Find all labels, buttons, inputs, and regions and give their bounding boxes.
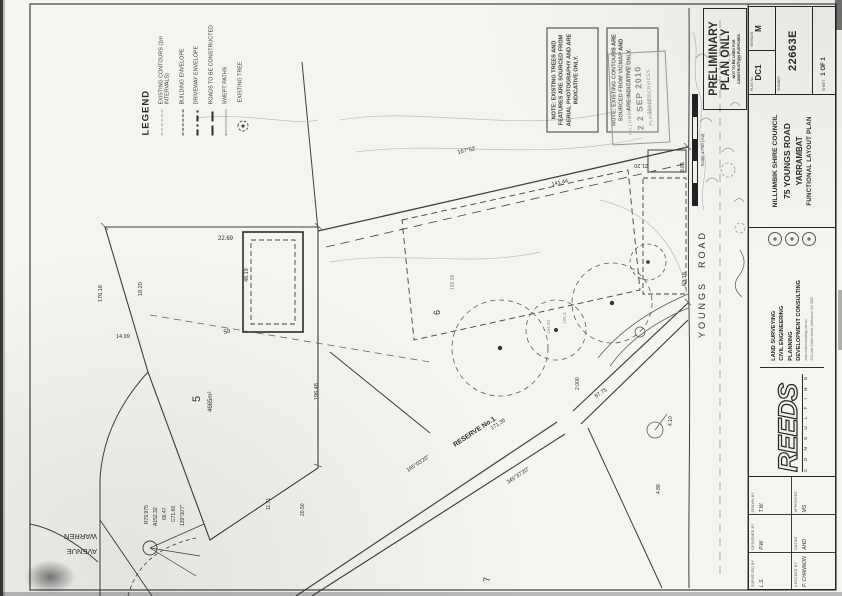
dimension-label: 9.85 <box>680 162 686 172</box>
lot-area-label: 4665m² <box>208 392 214 412</box>
field-value: AHD <box>802 517 808 549</box>
client-name: NILLUMBIK SHIRE COUNCIL <box>772 115 779 208</box>
certification-logos <box>768 232 816 246</box>
legend-item: EXISTING TREE <box>237 7 248 136</box>
lot7-east-boundary <box>588 428 662 588</box>
corner-splay-line <box>100 520 152 596</box>
reeds-logo-text: REEDS <box>776 374 800 472</box>
firm-service: PLANNING <box>787 251 795 361</box>
title-block: SURVEYED BY L.S. DESIGNED BY P.W. DRAWN … <box>748 6 836 590</box>
field-value: L.S. <box>759 555 765 587</box>
project-title-block: NILLUMBIK SHIRE COUNCIL 75 YOUNGS ROAD Y… <box>749 94 835 227</box>
version-value: M <box>754 10 763 47</box>
lot-number-label: 5 <box>191 396 203 402</box>
legend-item: DRIVEWAY ENVELOPE <box>194 7 200 136</box>
dimension-label: 2.000 <box>575 377 581 390</box>
survey-arc-label: A152.32 <box>153 507 159 526</box>
legend-item: ROADS TO BE CONSTRUCTED <box>208 7 214 136</box>
firm-services: LAND SURVEYING CIVIL ENGINEERING PLANNIN… <box>770 251 813 361</box>
legend-item-label: ROADS TO BE CONSTRUCTED <box>208 25 214 104</box>
legend-item-label: DRIVEWAY ENVELOPE <box>194 46 200 105</box>
field-label: DRAWN BY <box>751 479 755 512</box>
bearing-label: 139°30'7" <box>180 504 186 526</box>
dimension-label: 63.18 <box>682 272 688 286</box>
youngs-road-west-edge <box>688 8 689 588</box>
preliminary-stamp-line2: PLAN ONLY <box>721 28 733 90</box>
sheet-label: SHEET <box>822 80 826 91</box>
legend-item-label: BUILDING ENVELOPE <box>179 48 185 104</box>
radial-survey-lines <box>150 524 204 576</box>
legend-item: BUILDING ENVELOPE <box>179 7 185 136</box>
legend-tree-symbol-icon <box>237 121 248 132</box>
field-label: DESIGNED BY <box>751 517 755 549</box>
field-label: SURVEYED BY <box>751 555 755 587</box>
legend-item-label: SWEPT PATHS <box>223 67 229 105</box>
tree-trunk-dots <box>498 260 650 350</box>
dimension-label: 196.48 <box>314 383 320 400</box>
survey-arc-label: R79.975 <box>144 505 150 524</box>
plan-title: FUNCTIONAL LAYOUT PLAN <box>807 116 813 205</box>
plan-version-row: PLAN No. DC1 VERSION M <box>749 7 776 94</box>
project-address-line2: YARRAMBAT <box>795 137 804 186</box>
road-name-label: YOUNGS <box>697 281 707 338</box>
road-name-label: ROAD <box>697 230 707 268</box>
sheet-value: 1 OF 1 <box>821 57 827 75</box>
legend-line-roads <box>211 110 213 136</box>
number-cell: NUMBER 22663E <box>776 7 813 94</box>
reeds-tagline: C O N S U L T I N G <box>802 374 808 472</box>
received-stamp: NILLUMBIK SHIRE COUNCIL 2 2 SEP 2010 PLA… <box>608 51 671 146</box>
drawing-number-value: 22663E <box>787 10 799 91</box>
dimension-label: 22.69 <box>218 236 234 242</box>
contour-label: 198.98 <box>450 274 456 290</box>
firm-service: LAND SURVEYING <box>770 251 778 361</box>
scanned-plan-sheet: YOUNGS ROAD WARREN AVENUE RESERVE No.1 1… <box>0 0 842 596</box>
lot5-boundary <box>105 227 318 540</box>
firm-website: www.reedsconsulting.com.au <box>804 251 808 361</box>
received-stamp-dept: PLANNING SERVICES <box>646 69 654 126</box>
cul-de-sac-arc <box>128 538 196 596</box>
firm-service: DEVELOPMENT CONSULTING <box>795 251 803 361</box>
legend-line-contour <box>162 110 163 136</box>
number-label: NUMBER <box>777 10 781 91</box>
legend: LEGEND EXISTING CONTOURS (1m INTERVALS) … <box>133 5 311 138</box>
legend-item-label: EXISTING CONTOURS (1m INTERVALS) <box>159 7 172 105</box>
plan-labels: YOUNGS ROAD WARREN AVENUE RESERVE No.1 1… <box>64 96 707 582</box>
field-cell: APPROVED MS <box>792 477 835 514</box>
scale-bar-label: Scale 1:750 (A3) <box>700 134 705 167</box>
dimension-label: 4.88 <box>656 484 662 494</box>
field-label: DATUM <box>794 517 798 549</box>
project-address-line1: 75 YOUNGS ROAD <box>782 123 792 199</box>
bearing-label: 167°52' <box>457 146 476 156</box>
sheet-cell: SHEET 1 OF 1 <box>813 7 835 94</box>
road-name-label: AVENUE <box>67 547 97 556</box>
firm-address: 433 Little Collins Street, Melbourne VIC… <box>810 251 814 361</box>
field-cell: DATUM AHD <box>792 514 835 551</box>
dimension-label: 4.10 <box>668 416 674 426</box>
dimension-label: 14.99 <box>116 334 130 340</box>
reserve-road-edge-2 <box>312 320 688 596</box>
divider <box>760 367 824 368</box>
dimension-label: 141.44 <box>551 178 569 188</box>
contour-label: 194.50 <box>546 320 551 334</box>
field-cell: CHECKED BY P. CHANNON <box>792 552 835 589</box>
plan-no-cell: PLAN No. DC1 <box>749 50 775 94</box>
tree-and-secondary-linework <box>101 143 691 467</box>
legend-title: LEGEND <box>141 7 152 136</box>
east-lot-envelope-dashed <box>643 178 686 294</box>
easement-dashed-line <box>150 315 430 362</box>
field-value: T.W. <box>759 479 765 512</box>
contour-label: 195.3 <box>562 312 567 324</box>
bearing-label: 165°03'20" <box>406 454 431 473</box>
scale-bar-graphic <box>692 94 698 206</box>
handwritten-mark <box>735 250 744 297</box>
field-value: P. CHANNON <box>802 555 808 587</box>
road-name-label: WARREN <box>64 532 97 541</box>
dimension-label: 50 <box>223 329 231 336</box>
field-cell: DESIGNED BY P.W. <box>749 514 792 551</box>
legend-item: SWEPT PATHS <box>223 7 229 136</box>
firm-block: REEDS C O N S U L T I N G LAND SURVEYING… <box>749 227 835 476</box>
field-value: P.W. <box>759 517 765 549</box>
note-box-trees: NOTE: EXISTING TREES AND FEATURES ARE SO… <box>547 28 599 133</box>
dimension-label: 18.20 <box>138 282 144 296</box>
certification-logo-icon <box>802 232 816 246</box>
preliminary-stamp-sub2: CONSTRUCTION PURPOSES <box>737 34 741 84</box>
building-outline <box>243 232 303 332</box>
building-envelope-dashed <box>251 240 295 324</box>
received-stamp-org: NILLUMBIK SHIRE COUNCIL <box>624 62 633 135</box>
lot-number-label: 7 <box>482 577 492 582</box>
dimension-label: 20.50 <box>300 503 306 516</box>
field-label: APPROVED <box>794 479 798 512</box>
reeds-logo: REEDS C O N S U L T I N G <box>776 374 808 472</box>
dimension-label: 11.71 <box>266 498 272 510</box>
warren-avenue-east-edge <box>100 372 148 596</box>
reserve-road-edge-1 <box>296 303 688 596</box>
received-stamp-date: 2 2 SEP 2010 <box>632 66 645 131</box>
firm-service: CIVIL ENGINEERING <box>778 251 786 361</box>
field-value: MS <box>802 479 808 512</box>
certification-logo-icon <box>785 232 799 246</box>
legend-line-swept-path <box>226 110 227 136</box>
scale-bar: Scale 1:750 (A3) <box>692 84 712 216</box>
legend-line-driveway-envelope <box>197 110 199 136</box>
version-cell: VERSION M <box>749 7 775 50</box>
certification-logo-icon <box>768 232 782 246</box>
field-label: CHECKED BY <box>794 555 798 587</box>
dimension-label: 176.18 <box>98 285 104 302</box>
title-block-fields: SURVEYED BY L.S. DESIGNED BY P.W. DRAWN … <box>749 476 835 589</box>
plan-no-value: DC1 <box>754 54 763 91</box>
reserve-label: RESERVE No.1 <box>452 416 497 449</box>
survey-arc-label: 66.47 <box>162 507 168 520</box>
field-cell: SURVEYED BY L.S. <box>749 552 792 589</box>
lot-number-label: 6 <box>432 310 442 315</box>
internal-lot-line <box>330 352 430 433</box>
legend-item: EXISTING CONTOURS (1m INTERVALS) <box>159 7 172 136</box>
survey-arc-label: C71.66 <box>171 506 177 522</box>
dimension-ticks <box>101 143 691 467</box>
legend-line-building-envelope <box>182 110 183 136</box>
field-cell: DRAWN BY T.W. <box>749 477 792 514</box>
legend-item-label: EXISTING TREE <box>237 62 243 103</box>
proposed-road-dashed <box>326 164 684 247</box>
drawing-number-block: PLAN No. DC1 VERSION M NUMBER 22663E SHE… <box>749 7 835 94</box>
dimension-label: 48.19 <box>244 268 250 282</box>
dimension-label: 21.20 <box>634 162 648 168</box>
